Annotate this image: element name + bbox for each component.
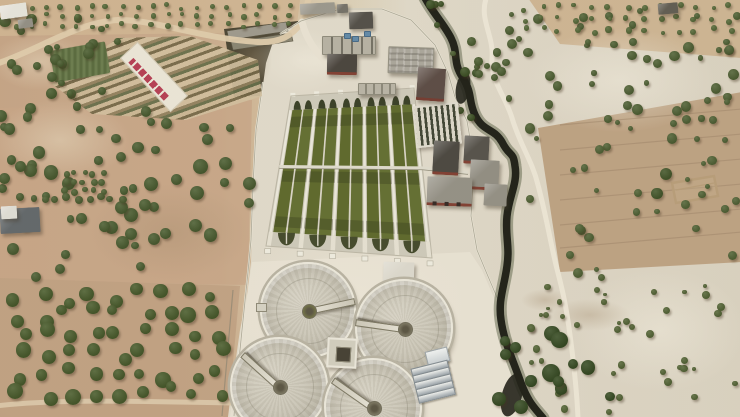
building-hill-pen (658, 2, 679, 15)
clarifier-platform (256, 303, 267, 312)
junction-box (326, 337, 358, 369)
building-tl-gray-shed (17, 18, 33, 29)
clarifier-center-hub (302, 304, 317, 319)
aerial-photo-wastewater-plant (0, 0, 740, 417)
building-farm-building-white (1, 206, 18, 220)
plant-structures-layer (0, 0, 740, 417)
building-north-dark-building (349, 12, 374, 30)
clarifier-center-hub (273, 380, 288, 395)
building-ne-building (416, 67, 446, 102)
building-door (433, 201, 437, 205)
blue-tarp (352, 36, 359, 42)
blue-tarp (364, 31, 371, 37)
clarifier-center-hub (367, 401, 382, 416)
building-north-shed-2 (337, 4, 348, 14)
junction-box-pit (335, 346, 351, 362)
blue-tarp (344, 33, 351, 39)
building-headworks-tanks (322, 36, 376, 55)
building-north-brick-building (327, 54, 357, 76)
building-door (444, 202, 448, 206)
building-se-small-building (483, 183, 507, 206)
filter-bank (410, 360, 453, 402)
building-north-shed-row (300, 2, 336, 15)
building-blower-building (432, 140, 460, 175)
building-tl-white-building (0, 2, 28, 20)
building-workshop-building (427, 176, 473, 207)
building-pre-basin-blocks (358, 83, 396, 95)
building-door (456, 202, 460, 206)
clarifier-center-hub (398, 322, 413, 337)
